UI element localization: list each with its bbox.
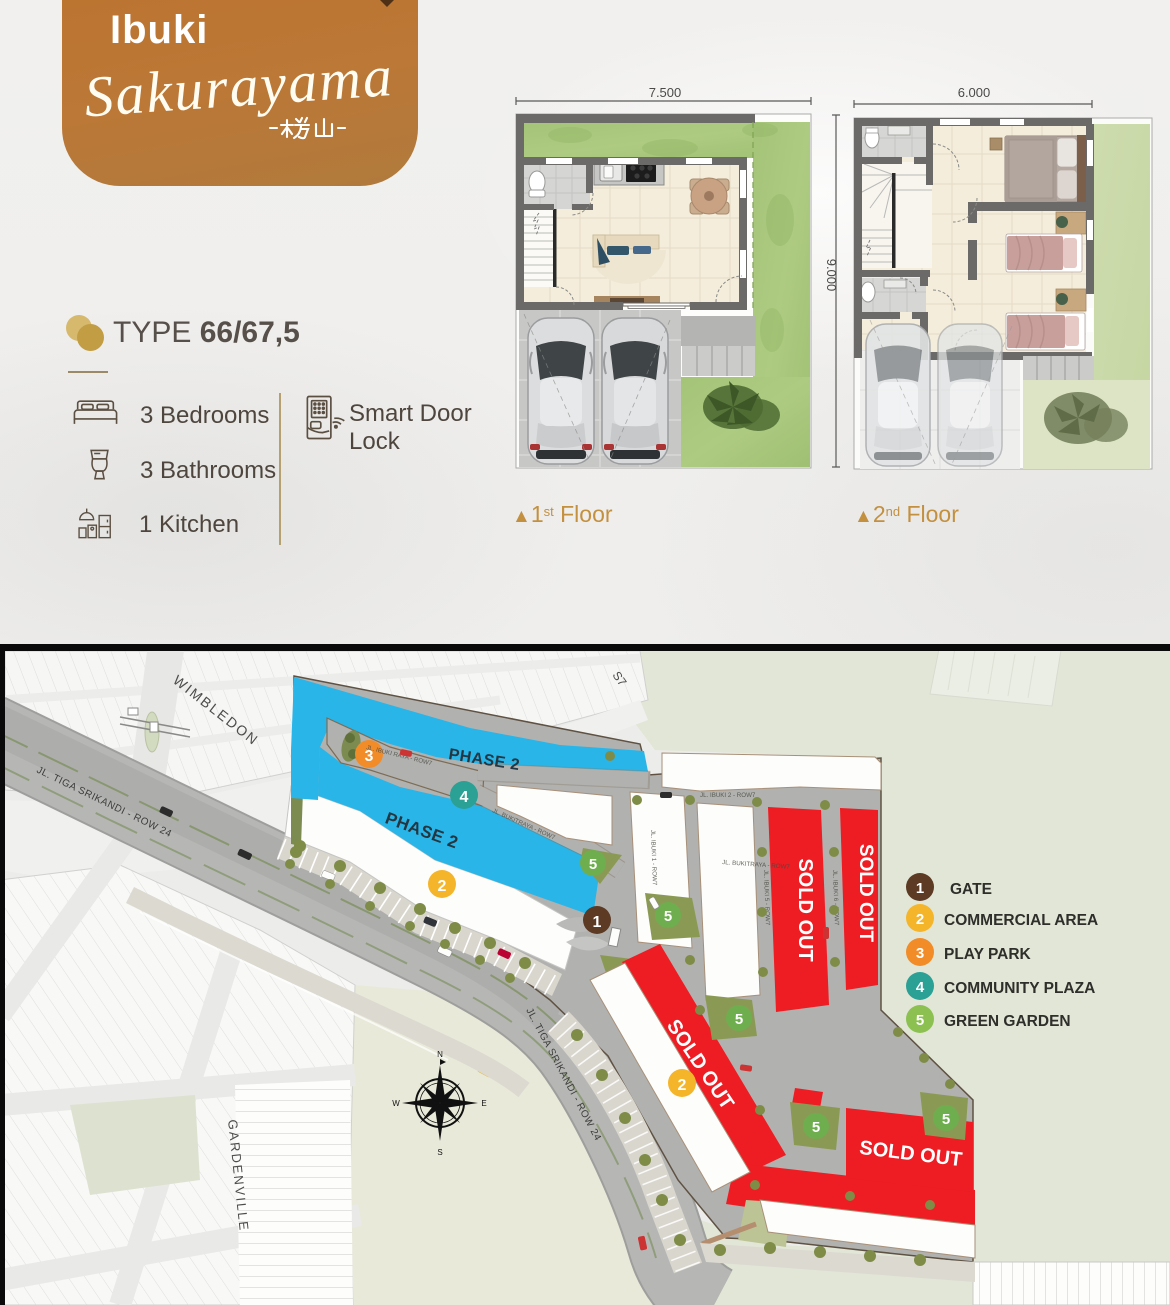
svg-text:4: 4 bbox=[916, 979, 925, 996]
svg-text:5: 5 bbox=[735, 1011, 743, 1028]
svg-text:2: 2 bbox=[438, 878, 447, 895]
svg-text:4: 4 bbox=[460, 789, 469, 806]
svg-text:E: E bbox=[481, 1099, 486, 1108]
svg-text:3: 3 bbox=[916, 945, 924, 962]
svg-text:7.500: 7.500 bbox=[649, 85, 682, 100]
svg-text:SOLD OUT: SOLD OUT bbox=[794, 858, 816, 961]
svg-text:JL. IBUKI 2 - ROW7: JL. IBUKI 2 - ROW7 bbox=[700, 792, 756, 799]
svg-text:1: 1 bbox=[916, 880, 924, 897]
svg-text:GREEN GARDEN: GREEN GARDEN bbox=[944, 1013, 1071, 1030]
svg-text:6.000: 6.000 bbox=[958, 85, 991, 100]
svg-text:W: W bbox=[392, 1099, 400, 1108]
svg-text:5: 5 bbox=[589, 856, 597, 873]
svg-text:N: N bbox=[437, 1050, 443, 1059]
svg-text:5: 5 bbox=[812, 1119, 820, 1136]
svg-text:PLAY PARK: PLAY PARK bbox=[944, 946, 1032, 963]
svg-text:2: 2 bbox=[916, 911, 924, 928]
svg-text:9.000: 9.000 bbox=[824, 259, 839, 292]
svg-text:2: 2 bbox=[678, 1077, 687, 1094]
svg-text:COMMERCIAL AREA: COMMERCIAL AREA bbox=[944, 912, 1098, 929]
svg-text:5: 5 bbox=[916, 1012, 924, 1029]
svg-text:GATE: GATE bbox=[950, 881, 992, 898]
svg-text:1: 1 bbox=[593, 914, 602, 931]
svg-text:SOLD OUT: SOLD OUT bbox=[855, 844, 876, 943]
svg-text:S: S bbox=[437, 1148, 442, 1157]
svg-text:COMMUNITY PLAZA: COMMUNITY PLAZA bbox=[944, 980, 1095, 997]
svg-text:5: 5 bbox=[664, 908, 672, 925]
svg-text:5: 5 bbox=[942, 1111, 950, 1128]
